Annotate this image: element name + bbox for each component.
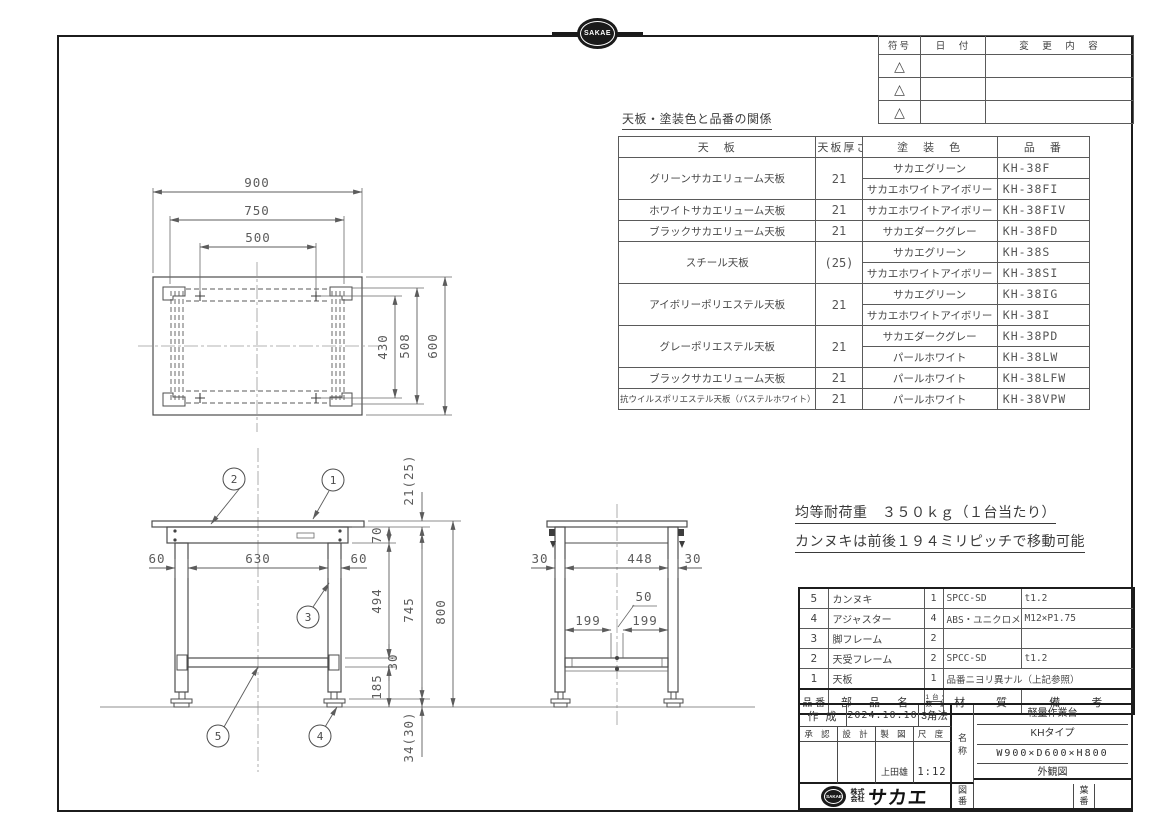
revision-date-cell <box>921 55 986 78</box>
part-material: SPCC-SD <box>943 649 1021 669</box>
part-material: ABS・ユニクロメッキ <box>943 609 1021 629</box>
spec-header-color: 塗 装 色 <box>862 137 997 158</box>
drawing-type: 外観図 <box>977 764 1128 783</box>
spec-color: サカエホワイトアイボリー <box>862 305 997 326</box>
dim-front-630: 630 <box>245 551 271 566</box>
product-name: 軽量作業台 <box>977 705 1128 725</box>
part-no: 2 <box>799 649 828 669</box>
dim-side-448: 448 <box>627 551 653 566</box>
dim-top-900: 900 <box>244 175 270 190</box>
spec-header-code: 品 番 <box>997 137 1089 158</box>
spec-thickness: 21 <box>816 326 862 368</box>
spec-color: パールホワイト <box>862 389 997 410</box>
svg-text:2: 2 <box>231 473 238 486</box>
revision-header-symbol: 符号 <box>879 36 921 55</box>
svg-text:4: 4 <box>317 730 324 743</box>
parts-table: 5 カンヌキ 1 SPCC-SD t1.2 4 アジャスター 4 ABS・ユニク… <box>798 587 1135 715</box>
drawing-no-value <box>974 784 1074 808</box>
company-logo: SAKAE 株式 会社 サカエ <box>800 784 952 808</box>
dim-front-70: 70 <box>369 526 384 543</box>
name-label-bottom: 称 <box>958 744 967 757</box>
spec-code: KH-38PD <box>997 326 1089 347</box>
revision-date-cell <box>921 101 986 124</box>
dim-top-600: 600 <box>425 333 440 359</box>
revision-triangle-icon: △ <box>879 78 921 101</box>
spec-thickness: 21 <box>816 221 862 242</box>
projection-method: 3角法 <box>919 705 952 727</box>
spec-row: ホワイトサカエリューム天板 21 サカエホワイトアイボリー KH-38FIV <box>619 200 1090 221</box>
revision-triangle-icon: △ <box>879 101 921 124</box>
balloon-2: 2 <box>211 468 245 524</box>
spec-code: KH-38FI <box>997 179 1089 200</box>
parts-row: 5 カンヌキ 1 SPCC-SD t1.2 <box>799 588 1134 609</box>
dim-side-30-left: 30 <box>531 551 548 566</box>
part-material: SPCC-SD <box>943 588 1021 609</box>
spec-color: サカエグリーン <box>862 242 997 263</box>
spec-header-top: 天 板 <box>619 137 816 158</box>
spec-color: サカエグリーン <box>862 284 997 305</box>
spec-color: サカエダークグレー <box>862 326 997 347</box>
created-date: 2024.10.10 <box>847 705 919 727</box>
spec-top-name: グリーンサカエリューム天板 <box>619 158 816 200</box>
dim-top-508: 508 <box>397 333 412 359</box>
spec-table-title: 天板・塗装色と品番の関係 <box>622 110 772 130</box>
drawing-no-label-bottom: 番 <box>958 796 967 807</box>
spec-row: アイボリーポリエステル天板 21 サカエグリーン KH-38IG <box>619 284 1090 305</box>
front-view: 60 630 60 70 494 30 185 21(25) 745 800 3… <box>100 448 755 772</box>
revision-triangle-icon: △ <box>879 55 921 78</box>
part-remark: t1.2 <box>1021 649 1134 669</box>
sheet-no-label-bottom: 番 <box>1079 796 1088 807</box>
part-qty: 1 <box>924 588 943 609</box>
spec-thickness: 21 <box>816 389 862 410</box>
spec-row: スチール天板 (25) サカエグリーン KH-38S <box>619 242 1090 263</box>
part-qty: 4 <box>924 609 943 629</box>
sheet-no-label: 葉 番 <box>1074 784 1095 808</box>
spec-code: KH-38F <box>997 158 1089 179</box>
name-label-top: 名 <box>958 731 967 744</box>
company-prefix-bottom: 会社 <box>850 796 864 803</box>
created-label: 作 成 <box>800 705 847 727</box>
spec-color: パールホワイト <box>862 368 997 389</box>
revision-row: △ <box>879 55 1134 78</box>
dim-top-430: 430 <box>375 334 390 360</box>
balloon-1: 1 <box>313 469 344 519</box>
spec-code: KH-38IG <box>997 284 1089 305</box>
spec-color: サカエグリーン <box>862 158 997 179</box>
badge-line-left <box>552 32 578 35</box>
spec-color: サカエホワイトアイボリー <box>862 263 997 284</box>
dim-side-199-right: 199 <box>632 613 658 628</box>
spec-table: 天 板 天板厚さ 塗 装 色 品 番 グリーンサカエリューム天板 21 サカエグ… <box>618 136 1090 410</box>
dim-front-800: 800 <box>433 599 448 625</box>
design-label: 設 計 <box>838 727 876 742</box>
spec-top-name: ホワイトサカエリューム天板 <box>619 200 816 221</box>
spec-code: KH-38S <box>997 242 1089 263</box>
name-label: 名 称 <box>952 705 974 784</box>
balloon-3: 3 <box>297 583 329 628</box>
part-name: 天受フレーム <box>828 649 924 669</box>
spec-top-name: スチール天板 <box>619 242 816 284</box>
spec-thickness: 21 <box>816 158 862 200</box>
dim-side-30-right: 30 <box>684 551 701 566</box>
dim-front-30: 30 <box>385 653 400 670</box>
spec-row: 抗ウイルスポリエステル天板（パステルホワイト） 21 パールホワイト KH-38… <box>619 389 1090 410</box>
balloon-4: 4 <box>309 707 337 747</box>
title-block: 作 成 2024.10.10 3角法 承 認 設 計 製 図 尺 度 上田雄 1… <box>798 703 1133 810</box>
part-qty: 1 <box>924 669 943 690</box>
product-names: 軽量作業台 KHタイプ W900×D600×H800 外観図 <box>974 705 1131 780</box>
revision-change-cell <box>986 101 1134 124</box>
dim-front-60-right: 60 <box>350 551 367 566</box>
dim-front-21-25: 21(25) <box>401 454 416 505</box>
spec-header-thickness: 天板厚さ <box>816 137 862 158</box>
part-no: 1 <box>799 669 828 690</box>
note-load-capacity: 均等耐荷重 ３５０ｋｇ（１台当たり） <box>795 502 1056 524</box>
drawing-no-label-top: 図 <box>958 785 967 796</box>
spec-row: ブラックサカエリューム天板 21 サカエダークグレー KH-38FD <box>619 221 1090 242</box>
part-name: 天板 <box>828 669 924 690</box>
part-remark <box>1021 629 1134 649</box>
badge-text: SAKAE <box>826 794 842 799</box>
part-remark: t1.2 <box>1021 588 1134 609</box>
part-name: アジャスター <box>828 609 924 629</box>
product-type: KHタイプ <box>977 725 1128 745</box>
revision-table: 符号 日 付 変 更 内 容 △ △ △ <box>878 35 1134 124</box>
svg-text:5: 5 <box>215 730 222 743</box>
svg-text:1: 1 <box>330 474 337 487</box>
parts-row: 1 天板 1 品番ニヨリ異ナル（上記参照） <box>799 669 1134 690</box>
dim-side-199-left: 199 <box>575 613 601 628</box>
dim-front-494: 494 <box>369 588 384 614</box>
dim-front-60-left: 60 <box>148 551 165 566</box>
notes: 均等耐荷重 ３５０ｋｇ（１台当たり） カンヌキは前後１９４ミリピッチで移動可能 <box>795 502 1085 560</box>
part-no: 5 <box>799 588 828 609</box>
note-cannuki-pitch: カンヌキは前後１９４ミリピッチで移動可能 <box>795 531 1085 553</box>
dim-side-50: 50 <box>635 589 652 604</box>
sheet-no-label-top: 葉 <box>1079 785 1088 796</box>
sakae-badge-icon: SAKAE <box>577 18 618 49</box>
part-no: 3 <box>799 629 828 649</box>
spec-row: グリーンサカエリューム天板 21 サカエグリーン KH-38F <box>619 158 1090 179</box>
spec-top-name: ブラックサカエリューム天板 <box>619 221 816 242</box>
spec-code: KH-38FIV <box>997 200 1089 221</box>
dim-front-34-30: 34(30) <box>401 711 416 762</box>
part-material <box>943 629 1021 649</box>
spec-color: パールホワイト <box>862 347 997 368</box>
part-material: 品番ニヨリ異ナル（上記参照） <box>943 669 1134 690</box>
drawing-no-label: 図 番 <box>952 784 974 808</box>
parts-row: 2 天受フレーム 2 SPCC-SD t1.2 <box>799 649 1134 669</box>
part-name: 脚フレーム <box>828 629 924 649</box>
scale-label: 尺 度 <box>914 727 952 742</box>
parts-row: 4 アジャスター 4 ABS・ユニクロメッキ M12×P1.75 <box>799 609 1134 629</box>
revision-header-change: 変 更 内 容 <box>986 36 1134 55</box>
approved-label: 承 認 <box>800 727 838 742</box>
side-view: 30 448 30 199 199 50 <box>531 504 702 726</box>
spec-thickness: 21 <box>816 284 862 326</box>
company-prefix: 株式 会社 <box>850 789 864 804</box>
revision-header-date: 日 付 <box>921 36 986 55</box>
sakae-badge-icon: SAKAE <box>821 786 846 807</box>
spec-top-name: 抗ウイルスポリエステル天板（パステルホワイト） <box>619 389 816 410</box>
spec-code: KH-38LFW <box>997 368 1089 389</box>
spec-color: サカエホワイトアイボリー <box>862 200 997 221</box>
approved-value <box>800 742 838 784</box>
spec-code: KH-38I <box>997 305 1089 326</box>
part-name: カンヌキ <box>828 588 924 609</box>
spec-code: KH-38VPW <box>997 389 1089 410</box>
part-no: 4 <box>799 609 828 629</box>
spec-top-name: アイボリーポリエステル天板 <box>619 284 816 326</box>
dim-front-185: 185 <box>369 674 384 700</box>
dim-top-500: 500 <box>245 230 271 245</box>
spec-row: ブラックサカエリューム天板 21 パールホワイト KH-38LFW <box>619 368 1090 389</box>
spec-code: KH-38LW <box>997 347 1089 368</box>
spec-top-name: グレーポリエステル天板 <box>619 326 816 368</box>
drawing-sheet: SAKAE 900 750 500 430 <box>0 0 1171 828</box>
company-name: サカエ <box>867 783 930 810</box>
spec-top-name: ブラックサカエリューム天板 <box>619 368 816 389</box>
spec-thickness: 21 <box>816 368 862 389</box>
dim-top-750: 750 <box>244 203 270 218</box>
badge-text: SAKAE <box>584 30 611 37</box>
dim-front-745: 745 <box>401 597 416 623</box>
revision-change-cell <box>986 78 1134 101</box>
draft-label: 製 図 <box>876 727 914 742</box>
spec-thickness: 21 <box>816 200 862 221</box>
spec-color: サカエダークグレー <box>862 221 997 242</box>
spec-code: KH-38FD <box>997 221 1089 242</box>
part-qty: 2 <box>924 629 943 649</box>
part-qty: 2 <box>924 649 943 669</box>
revision-row: △ <box>879 78 1134 101</box>
spec-thickness: (25) <box>816 242 862 284</box>
sheet-no-value <box>1095 784 1131 808</box>
badge-line-right <box>617 32 643 35</box>
svg-text:3: 3 <box>305 611 312 624</box>
revision-change-cell <box>986 55 1134 78</box>
spec-row: グレーポリエステル天板 21 サカエダークグレー KH-38PD <box>619 326 1090 347</box>
design-value <box>838 742 876 784</box>
spec-code: KH-38SI <box>997 263 1089 284</box>
drafter-name: 上田雄 <box>876 742 914 784</box>
revision-row: △ <box>879 101 1134 124</box>
top-view: 900 750 500 430 508 600 <box>138 175 452 432</box>
scale-value: 1:12 <box>914 742 952 784</box>
parts-row: 3 脚フレーム 2 <box>799 629 1134 649</box>
spec-color: サカエホワイトアイボリー <box>862 179 997 200</box>
product-size: W900×D600×H800 <box>977 745 1128 765</box>
revision-date-cell <box>921 78 986 101</box>
part-remark: M12×P1.75 <box>1021 609 1134 629</box>
company-prefix-top: 株式 <box>850 789 864 796</box>
